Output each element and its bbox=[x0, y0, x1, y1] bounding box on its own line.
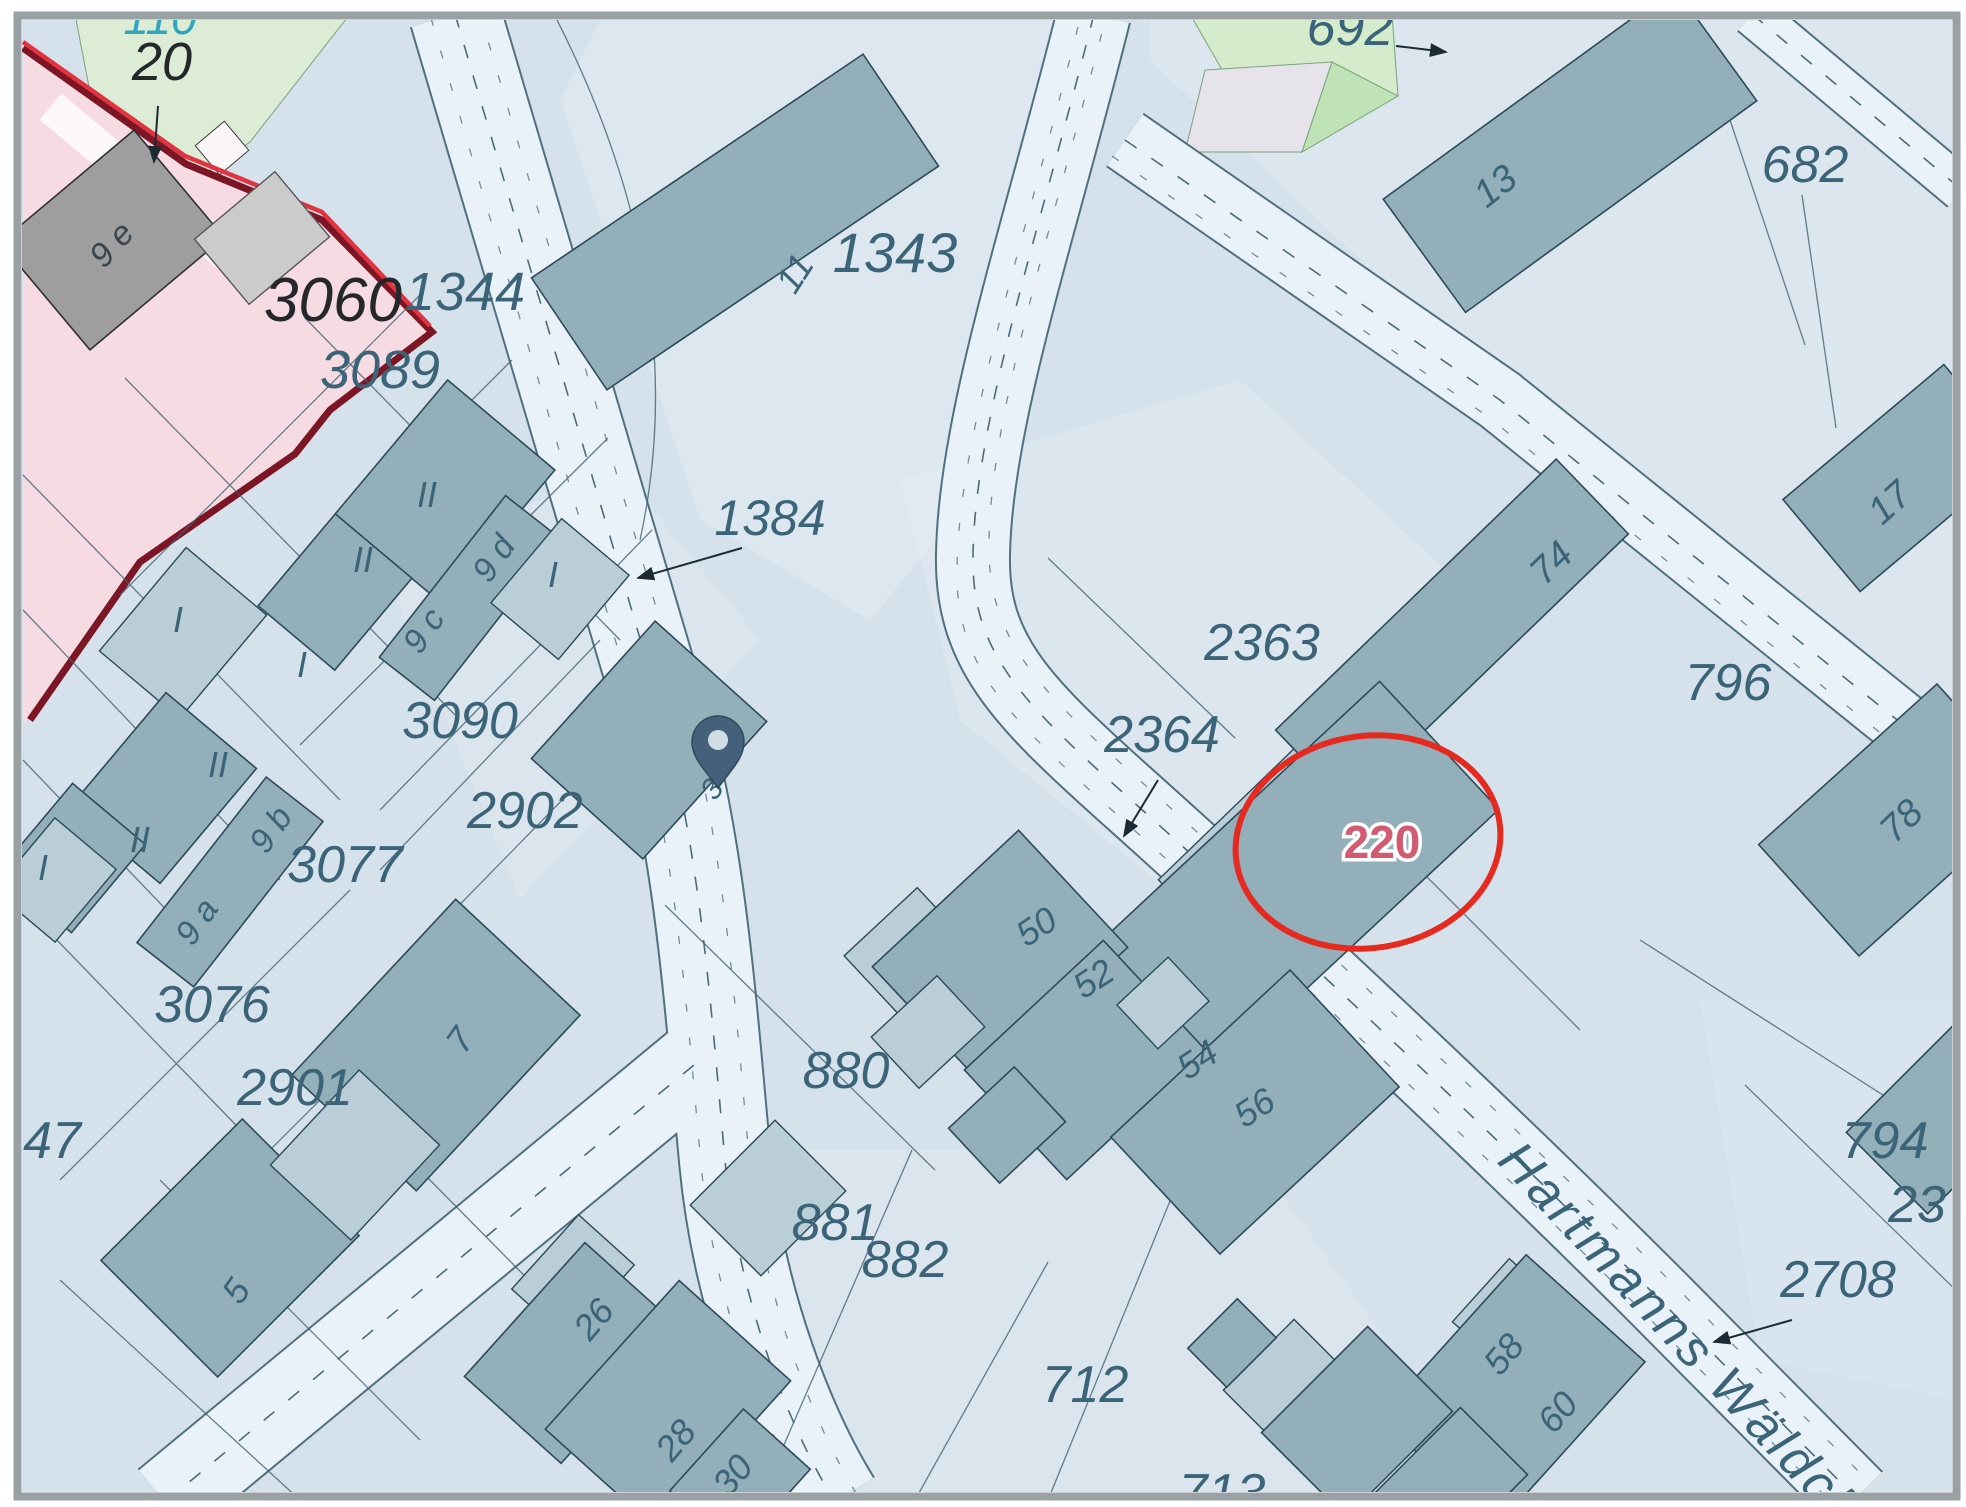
floor-label-II-3: II bbox=[208, 744, 228, 785]
parcel-label-3089: 3089 bbox=[320, 340, 440, 400]
highlighted-parcel-label-220: 220 bbox=[1344, 816, 1421, 868]
parcel-label-2902: 2902 bbox=[466, 782, 583, 840]
parcel-label-796: 796 bbox=[1685, 654, 1772, 712]
parcel-label-1384: 1384 bbox=[714, 490, 825, 546]
floor-label-II-4: II bbox=[130, 819, 150, 860]
map-content: 1344308913433060201106926821384236323647… bbox=[0, 0, 1966, 1507]
parcel-label-713-clipped: 713 bbox=[1179, 1464, 1266, 1507]
parcel-label-23: 23 bbox=[1887, 1176, 1946, 1234]
parcel-label-3090: 3090 bbox=[402, 692, 518, 750]
floor-label-I-1: I bbox=[548, 554, 558, 595]
map-canvas[interactable]: 1344308913433060201106926821384236323647… bbox=[0, 0, 1966, 1507]
parcel-label-2708: 2708 bbox=[1779, 1251, 1896, 1309]
floor-label-II-2: II bbox=[353, 539, 373, 580]
parcel-label-882: 882 bbox=[862, 1231, 949, 1289]
parcel-label-682: 682 bbox=[1762, 136, 1849, 194]
parcel-label-692: 692 bbox=[1307, 0, 1394, 57]
parcel-label-880: 880 bbox=[803, 1042, 890, 1100]
floor-label-I-4: I bbox=[38, 847, 48, 888]
parcel-label-47: 47 bbox=[23, 1112, 83, 1170]
parcel-label-3060: 3060 bbox=[264, 266, 402, 335]
parcel-label-1344: 1344 bbox=[405, 262, 525, 322]
parcel-label-2901: 2901 bbox=[236, 1059, 353, 1117]
parcel-label-794: 794 bbox=[1842, 1112, 1929, 1170]
floor-label-II-1: II bbox=[417, 474, 437, 515]
parcel-label-3076: 3076 bbox=[154, 976, 270, 1034]
map-screenshot: 1344308913433060201106926821384236323647… bbox=[0, 0, 1966, 1507]
parcel-label-2364: 2364 bbox=[1103, 706, 1220, 764]
floor-label-I-3: I bbox=[297, 644, 307, 685]
parcel-label-110-clipped: 110 bbox=[123, 0, 197, 44]
parcel-label-2363: 2363 bbox=[1203, 614, 1320, 672]
pin-center-dot bbox=[708, 730, 728, 750]
floor-label-I-2: I bbox=[173, 599, 183, 640]
parcel-label-1343: 1343 bbox=[833, 221, 958, 284]
parcel-label-3077: 3077 bbox=[287, 836, 405, 894]
parcel-label-712: 712 bbox=[1042, 1356, 1129, 1414]
